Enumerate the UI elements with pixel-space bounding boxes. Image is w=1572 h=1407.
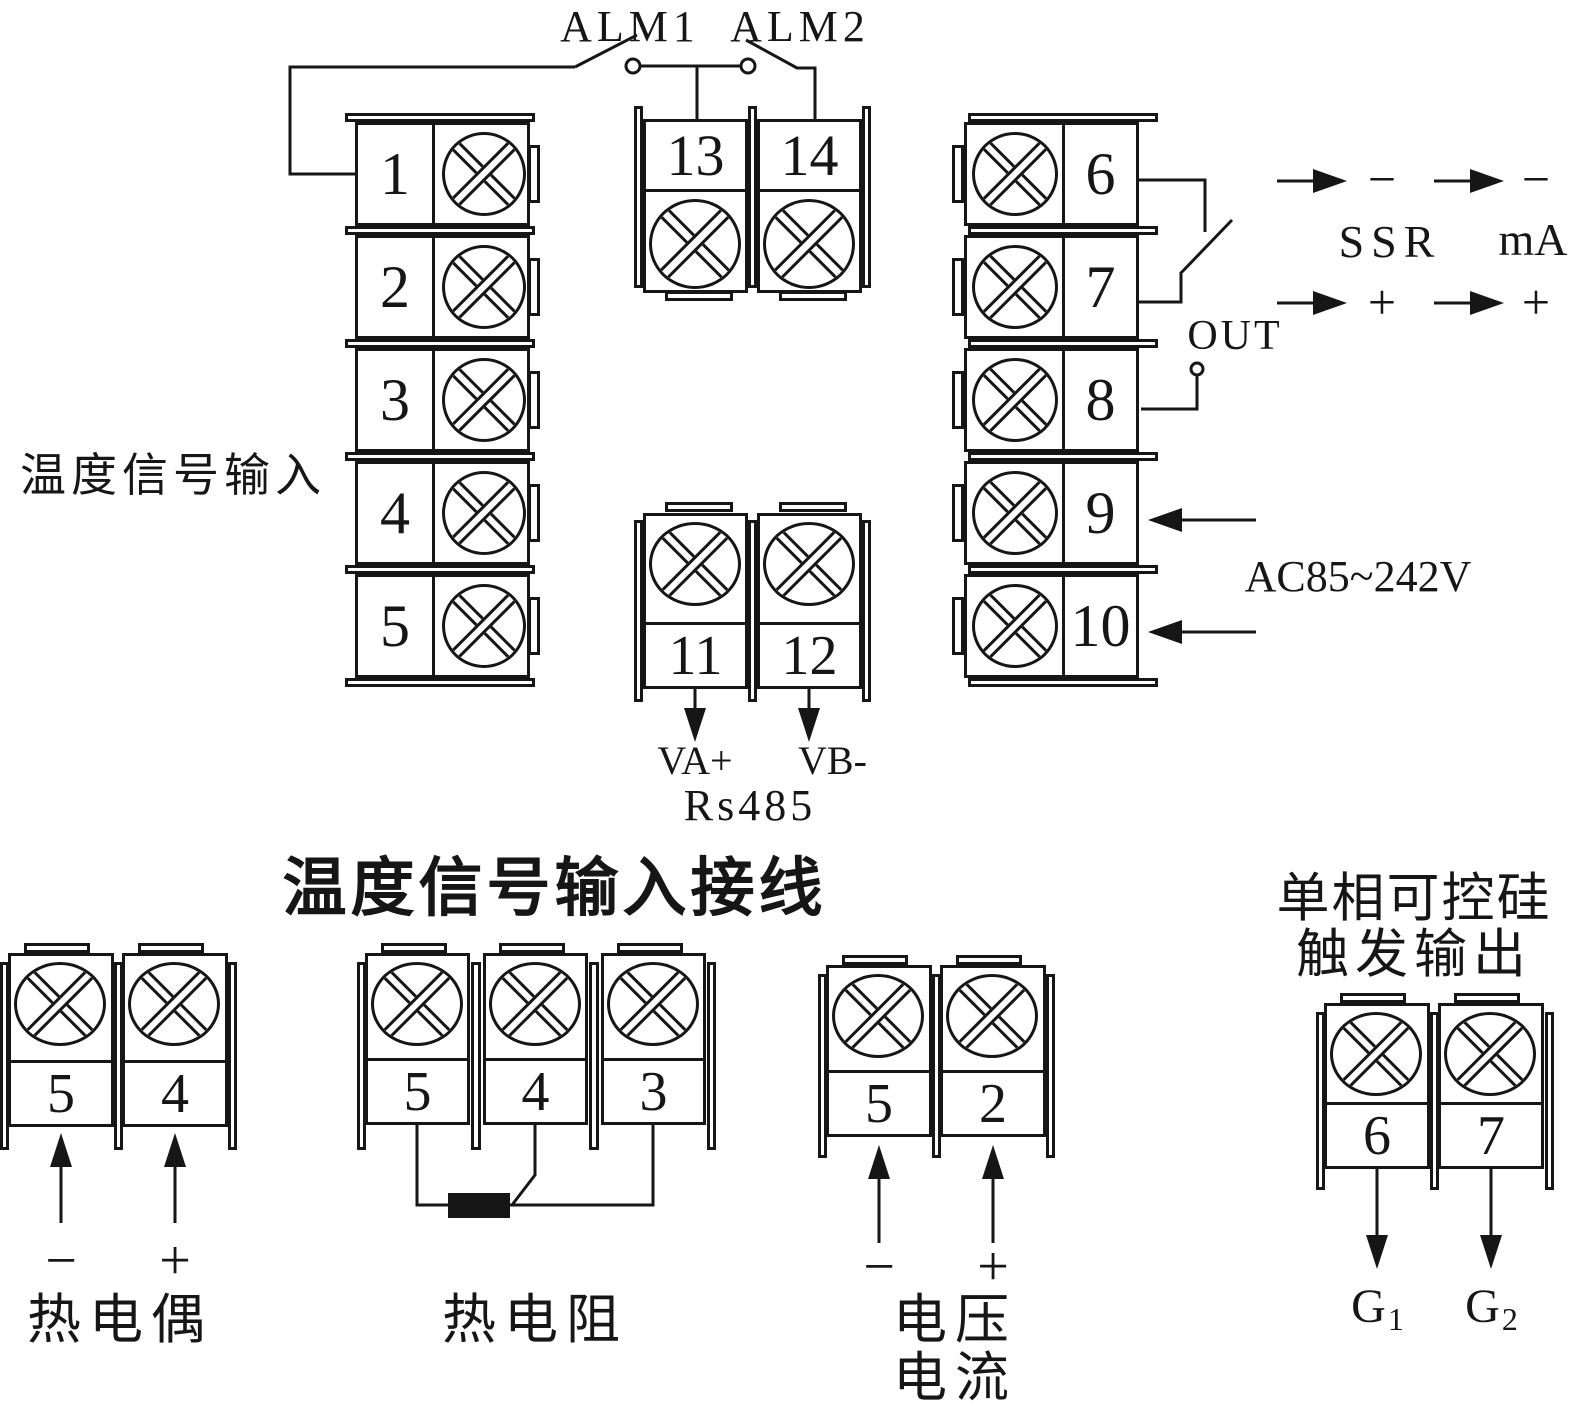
vi-terminal-5-number: 5 (829, 1070, 929, 1134)
rtd-terminal-5-number: 5 (368, 1058, 467, 1122)
g2-subscript: 2 (1502, 1301, 1518, 1337)
terminal-tab (24, 943, 90, 953)
scr-terminal-7-number: 7 (1441, 1102, 1541, 1166)
screw-icon (128, 962, 220, 1046)
temp-signal-input-label: 温度信号输入 (8, 452, 338, 500)
vi-terminal-2: 2 (940, 965, 1046, 1137)
terminal-tab (842, 955, 908, 965)
screw-icon (972, 245, 1058, 329)
separator-strip (968, 678, 1158, 687)
block-rail (471, 962, 481, 1150)
terminal-11-number: 11 (646, 622, 745, 686)
rtd-terminal-3: 3 (601, 953, 706, 1125)
terminal-7: 7 (964, 235, 1139, 339)
screw-icon (371, 962, 463, 1046)
ssr-label: SSR (1330, 218, 1450, 266)
g2-label: G2 (1443, 1282, 1538, 1332)
ssr-minus-sign: − (1352, 153, 1412, 206)
block-rail (589, 962, 599, 1150)
scr-title-line1: 单相可控硅 (1254, 872, 1572, 928)
thermocouple-minus-sign: − (31, 1232, 91, 1291)
terminal-7-number: 7 (1062, 238, 1136, 336)
separator-strip (345, 452, 535, 461)
screw-icon (832, 974, 924, 1058)
screw-icon (442, 132, 526, 216)
terminal-tab (381, 943, 447, 953)
scr-terminal-6: 6 (1324, 1003, 1430, 1169)
screw-icon (442, 358, 526, 442)
terminal-2-number: 2 (358, 238, 435, 336)
terminal-12-number: 12 (760, 622, 859, 686)
vi-minus-sign: − (849, 1238, 909, 1297)
g2-letter: G (1465, 1280, 1500, 1333)
screw-icon (946, 974, 1038, 1058)
out-label: OUT (1180, 314, 1290, 358)
terminal-tab (779, 502, 847, 512)
screw-icon (649, 199, 741, 289)
terminal-13: 13 (643, 119, 748, 293)
screw-icon (1444, 1012, 1536, 1096)
current-label: 电流 (855, 1350, 1055, 1407)
terminal-11: 11 (643, 513, 748, 689)
terminal-tab (952, 484, 964, 542)
screw-icon (607, 962, 699, 1046)
screw-icon (442, 245, 526, 329)
scr-terminal-7: 7 (1438, 1003, 1544, 1169)
thermocouple-terminal-4: 4 (122, 953, 228, 1127)
block-rail (1046, 974, 1055, 1158)
terminal-6-number: 6 (1062, 125, 1136, 223)
terminal-9: 9 (964, 461, 1139, 565)
separator-strip (968, 113, 1158, 122)
block-rail (748, 106, 757, 288)
terminal-12: 12 (757, 513, 862, 689)
screw-icon (442, 471, 526, 555)
rtd-terminal-3-number: 3 (604, 1058, 703, 1122)
screw-icon (763, 522, 855, 606)
thermocouple-terminal-5: 5 (8, 953, 114, 1127)
screw-icon (649, 522, 741, 606)
terminal-3-number: 3 (358, 351, 435, 449)
g1-label: G1 (1329, 1282, 1424, 1332)
wiring-diagram: ALM1 ALM2 温度信号输入 SSR mA − − + + OUT AC85… (0, 0, 1572, 1407)
screw-icon (972, 358, 1058, 442)
screw-icon (442, 584, 526, 668)
terminal-tab (952, 371, 964, 429)
vi-terminal-2-number: 2 (943, 1070, 1043, 1134)
terminal-2: 2 (355, 235, 530, 339)
separator-strip (968, 452, 1158, 461)
ac-power-label: AC85~242V (1228, 554, 1488, 600)
scr-terminal-6-number: 6 (1327, 1102, 1427, 1166)
block-rail (1545, 1012, 1554, 1190)
screw-icon (972, 584, 1058, 668)
terminal-1-number: 1 (358, 125, 435, 223)
block-rail (862, 520, 871, 702)
screw-icon (972, 132, 1058, 216)
separator-strip (345, 565, 535, 574)
terminal-14-number: 14 (760, 122, 859, 192)
terminal-tab (1454, 993, 1520, 1003)
va-plus-label: VA+ (655, 740, 735, 782)
terminal-6: 6 (964, 122, 1139, 226)
rtd-label: 热电阻 (415, 1292, 655, 1349)
voltage-label: 电压 (855, 1292, 1055, 1349)
screw-icon (14, 962, 106, 1046)
thermocouple-terminal-5-number: 5 (11, 1060, 111, 1124)
thermocouple-terminal-4-number: 4 (125, 1060, 225, 1124)
separator-strip (968, 226, 1158, 235)
separator-strip (345, 113, 535, 122)
terminal-tab (956, 955, 1022, 965)
separator-strip (968, 565, 1158, 574)
rtd-terminal-5: 5 (365, 953, 470, 1125)
g1-letter: G (1351, 1280, 1386, 1333)
separator-strip (345, 339, 535, 348)
ma-label: mA (1488, 216, 1572, 264)
separator-strip (345, 678, 535, 687)
terminal-tab (952, 258, 964, 316)
terminal-9-number: 9 (1062, 464, 1136, 562)
rs485-label: Rs485 (680, 783, 820, 829)
terminal-3: 3 (355, 348, 530, 452)
alm2-label: ALM2 (715, 4, 885, 50)
terminal-tab (665, 502, 733, 512)
terminal-tab (952, 145, 964, 203)
block-rail (634, 106, 643, 288)
terminal-4-number: 4 (358, 464, 435, 562)
rtd-terminal-4: 4 (483, 953, 588, 1125)
alm1-label: ALM1 (545, 4, 715, 50)
bottom-section-title: 温度信号输入接线 (262, 855, 847, 922)
thermocouple-label: 热电偶 (10, 1292, 230, 1349)
terminal-8: 8 (964, 348, 1139, 452)
thermocouple-plus-sign: + (145, 1232, 205, 1291)
terminal-tab (138, 943, 204, 953)
ma-minus-sign: − (1506, 153, 1566, 206)
terminal-10-number: 10 (1062, 577, 1136, 675)
ssr-plus-sign: + (1352, 276, 1412, 329)
block-rail (748, 520, 757, 702)
separator-strip (968, 339, 1158, 348)
vi-terminal-5: 5 (826, 965, 932, 1137)
ma-plus-sign: + (1506, 276, 1566, 329)
vb-minus-label: VB- (790, 740, 875, 782)
terminal-14: 14 (757, 119, 862, 293)
scr-title-line2: 触发输出 (1254, 928, 1572, 984)
screw-icon (489, 962, 581, 1046)
terminal-tab (1340, 993, 1406, 1003)
terminal-tab (499, 943, 565, 953)
terminal-8-number: 8 (1062, 351, 1136, 449)
terminal-5-number: 5 (358, 577, 435, 675)
vi-plus-sign: + (963, 1238, 1023, 1297)
separator-strip (345, 226, 535, 235)
terminal-4: 4 (355, 461, 530, 565)
terminal-10: 10 (964, 574, 1139, 678)
g1-subscript: 1 (1388, 1301, 1404, 1337)
screw-icon (972, 471, 1058, 555)
block-rail (228, 962, 237, 1150)
terminal-tab (952, 597, 964, 655)
block-rail (707, 962, 716, 1150)
terminal-5: 5 (355, 574, 530, 678)
screw-icon (763, 199, 855, 289)
block-rail (862, 106, 871, 288)
terminal-13-number: 13 (646, 122, 745, 192)
terminal-1: 1 (355, 122, 530, 226)
rtd-terminal-4-number: 4 (486, 1058, 585, 1122)
block-rail (634, 520, 643, 702)
terminal-tab (617, 943, 683, 953)
screw-icon (1330, 1012, 1422, 1096)
